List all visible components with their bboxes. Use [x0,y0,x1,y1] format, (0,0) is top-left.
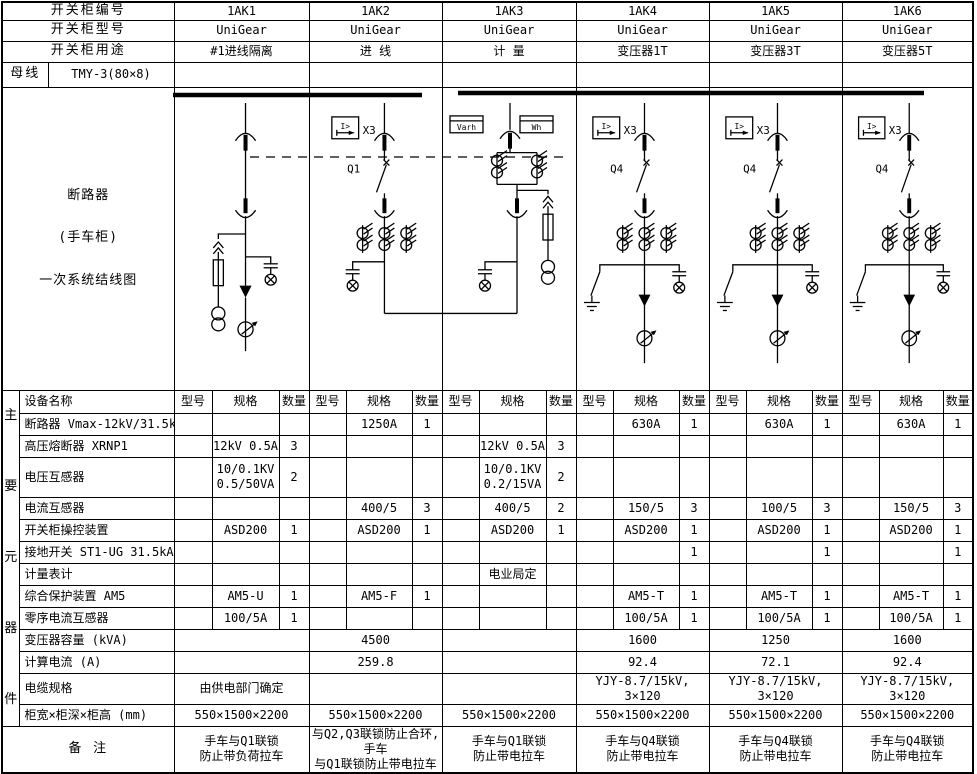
oneline-diagram-1ak1 [175,103,309,375]
cell-r2-cab6-model [842,457,879,497]
cell-r7-cab3-spec [479,585,546,607]
equipment-row-1: 高压熔断器 XRNP112kV 0.5A312kV 0.5A3 [2,435,973,457]
col-header-qty: 数量 [812,390,842,413]
cell-r3-cab1-spec [212,497,279,519]
cell-r1-cab1-spec: 12kV 0.5A [212,435,279,457]
cell-r7-cab5-model [709,585,746,607]
cell-r6-cab6-spec [879,563,943,585]
cell-r11-cab5: YJY-8.7/15kV, 3×120 [709,673,842,704]
cell-r2-cab3-qty: 2 [546,457,576,497]
cell-r0-cab4-qty: 1 [679,413,709,435]
cell-r0-cab5-spec: 630A [746,413,812,435]
cell-r8-cab5-model [709,607,746,629]
cell-r8-cab2-model [309,607,346,629]
col-header-qty: 数量 [679,390,709,413]
relay-symbol-text: I> [340,121,350,130]
cell-r9-cab5: 1250 [709,629,842,651]
cell-r8-cab6-qty: 1 [943,607,973,629]
cell-r3-cab3-qty: 2 [546,497,576,519]
cell-r2-cab5-spec [746,457,812,497]
equipment-name-7: 综合保护装置 AM5 [19,585,174,607]
side-char: 件 [4,692,17,708]
cabinet-purpose-3: 计 量 [442,41,576,62]
cell-r3-cab2-qty: 3 [412,497,442,519]
breaker-label-q4: Q4 [875,162,888,175]
cell-r12-cab4: 550×1500×2200 [576,704,709,726]
remark-1ak1: 手车与Q1联锁 防止带负荷拉车 [174,726,309,773]
cell-r9-cab3 [442,629,576,651]
cell-r2-cab3-model [442,457,479,497]
cell-r0-cab2-model [309,413,346,435]
diagram-cell-1ak2: I> X3 Q1 [309,87,442,390]
cell-r8-cab2-qty [412,607,442,629]
side-char: 器 [4,621,17,637]
equipment-name-6: 计量表计 [19,563,174,585]
cell-r5-cab5-model [709,541,746,563]
cabinet-purpose-4: 变压器1T [576,41,709,62]
row-remarks: 备 注 手车与Q1联锁 防止带负荷拉车 与Q2,Q3联锁防止合环,手车 与Q1联… [2,726,973,773]
cell-r6-cab3-spec: 电业局定 [479,563,546,585]
cell-r2-cab1-model [174,457,212,497]
row-diagrams: 断路器 (手车柜) 一次系统结线图 [2,87,973,390]
cabinet-number-4: 1AK4 [576,2,709,20]
cell-r2-cab2-qty [412,457,442,497]
cell-r7-cab2-model [309,585,346,607]
remarks-label: 备 注 [2,726,174,773]
cell-r0-cab1-model [174,413,212,435]
col-header-model: 型号 [842,390,879,413]
cell-r5-cab3-spec [479,541,546,563]
diagram-cell-1ak4: I> X3 Q4 [576,87,709,390]
cell-r6-cab2-qty [412,563,442,585]
cell-r0-cab1-qty [279,413,309,435]
cabinet-number-5: 1AK5 [709,2,842,20]
cell-r6-cab1-qty [279,563,309,585]
equipment-row-12: 柜宽×柜深×柜高 (mm)550×1500×2200550×1500×22005… [2,704,973,726]
cabinet-model-label: 开关柜型号 [2,20,174,41]
cell-r5-cab2-model [309,541,346,563]
cell-r5-cab1-spec [212,541,279,563]
col-header-spec: 规格 [479,390,546,413]
cell-r3-cab1-qty [279,497,309,519]
cell-r0-cab4-model [576,413,613,435]
cabinet-number-1: 1AK1 [174,2,309,20]
cell-r4-cab3-model [442,519,479,541]
cabinet-purpose-5: 变压器3T [709,41,842,62]
busbar-cell-1ak6 [842,62,973,87]
cell-r9-cab2: 4500 [309,629,442,651]
equipment-row-2: 电压互感器10/0.1KV 0.5/50VA210/0.1KV 0.2/15VA… [2,457,973,497]
col-header-qty: 数量 [279,390,309,413]
cell-r6-cab4-model [576,563,613,585]
cell-r7-cab2-spec: AM5-F [346,585,412,607]
busbar-label: 母线 [2,62,48,87]
cabinet-number-6: 1AK6 [842,2,973,20]
cell-r7-cab2-qty: 1 [412,585,442,607]
diagram-cell-1ak5: I> X3 Q4 [709,87,842,390]
cell-r5-cab6-qty: 1 [943,541,973,563]
equipment-name-5: 接地开关 ST1-UG 31.5kA [19,541,174,563]
cell-r1-cab3-model [442,435,479,457]
col-header-qty: 数量 [943,390,973,413]
diagram-cell-1ak1 [174,87,309,390]
cell-r5-cab2-spec [346,541,412,563]
cell-r3-cab4-model [576,497,613,519]
col-header-model: 型号 [442,390,479,413]
cabinet-model-5: UniGear [709,20,842,41]
cell-r5-cab3-model [442,541,479,563]
cell-r1-cab4-model [576,435,613,457]
cell-r2-cab3-spec: 10/0.1KV 0.2/15VA [479,457,546,497]
cell-r8-cab6-spec: 100/5A [879,607,943,629]
cell-r7-cab1-qty: 1 [279,585,309,607]
cell-r7-cab6-spec: AM5-T [879,585,943,607]
cell-r8-cab4-spec: 100/5A [613,607,679,629]
cell-r6-cab4-qty [679,563,709,585]
cell-r7-cab1-model [174,585,212,607]
cell-r11-cab4: YJY-8.7/15kV, 3×120 [576,673,709,704]
cell-r5-cab1-qty [279,541,309,563]
col-header-spec: 规格 [212,390,279,413]
equipment-name-11: 电缆规格 [19,673,174,704]
cell-r3-cab5-spec: 100/5 [746,497,812,519]
cell-r5-cab1-model [174,541,212,563]
cell-r6-cab6-qty [943,563,973,585]
cell-r12-cab5: 550×1500×2200 [709,704,842,726]
cell-r4-cab6-qty: 1 [943,519,973,541]
oneline-diagram-1ak4: I> X3 Q4 [577,103,709,375]
cell-r6-cab5-spec [746,563,812,585]
cell-r1-cab5-model [709,435,746,457]
cell-r7-cab4-spec: AM5-T [613,585,679,607]
cell-r0-cab6-spec: 630A [879,413,943,435]
cell-r7-cab5-qty: 1 [812,585,842,607]
cell-r8-cab2-spec [346,607,412,629]
cell-r0-cab2-spec: 1250A [346,413,412,435]
cell-r4-cab2-model [309,519,346,541]
cell-r7-cab3-model [442,585,479,607]
remark-1ak4: 手车与Q4联锁 防止带电拉车 [576,726,709,773]
cell-r0-cab3-qty [546,413,576,435]
remark-1ak6: 手车与Q4联锁 防止带电拉车 [842,726,973,773]
cell-r8-cab5-spec: 100/5A [746,607,812,629]
cell-r10-cab1 [174,651,309,673]
cell-r8-cab3-spec [479,607,546,629]
cell-r4-cab1-model [174,519,212,541]
cabinet-purpose-1: #1进线隔离 [174,41,309,62]
cell-r8-cab3-qty [546,607,576,629]
cell-r3-cab6-model [842,497,879,519]
cell-r4-cab1-spec: ASD200 [212,519,279,541]
cell-r7-cab6-qty: 1 [943,585,973,607]
busbar-cell-1ak2 [309,62,442,87]
cell-r2-cab2-spec [346,457,412,497]
cell-r4-cab1-qty: 1 [279,519,309,541]
cell-r11-cab1: 由供电部门确定 [174,673,309,704]
cell-r5-cab4-model [576,541,613,563]
equipment-row-7: 综合保护装置 AM5AM5-U1AM5-F1AM5-T1AM5-T1AM5-T1 [2,585,973,607]
col-header-model: 型号 [576,390,613,413]
relay-symbol-text: I> [867,121,877,130]
remark-1ak5: 手车与Q4联锁 防止带电拉车 [709,726,842,773]
wh-meter-label: Wh [531,122,541,131]
col-header-spec: 规格 [613,390,679,413]
cell-r8-cab3-model [442,607,479,629]
cell-r1-cab1-model [174,435,212,457]
equipment-name-12: 柜宽×柜深×柜高 (mm) [19,704,174,726]
diagram-cell-1ak6: I> X3 Q4 [842,87,973,390]
cell-r4-cab2-spec: ASD200 [346,519,412,541]
cell-r3-cab1-model [174,497,212,519]
oneline-diagram-1ak2: I> X3 Q1 [310,103,442,375]
equipment-row-4: 开关柜操控装置ASD2001ASD2001ASD2001ASD2001ASD20… [2,519,973,541]
col-header-spec: 规格 [746,390,812,413]
cell-r8-cab6-model [842,607,879,629]
col-header-name: 设备名称 [19,390,174,413]
col-header-qty: 数量 [546,390,576,413]
cell-r6-cab5-model [709,563,746,585]
cabinet-purpose-2: 进 线 [309,41,442,62]
cell-r2-cab5-model [709,457,746,497]
cell-r2-cab5-qty [812,457,842,497]
cell-r5-cab4-spec [613,541,679,563]
cell-r3-cab4-qty: 3 [679,497,709,519]
cell-r3-cab2-spec: 400/5 [346,497,412,519]
drawing-sheet: 开关柜编号 1AK1 1AK2 1AK3 1AK4 1AK5 1AK6 开关柜型… [0,1,977,738]
cell-r3-cab6-qty: 3 [943,497,973,519]
equipment-row-0: 断路器 Vmax-12kV/31.5kA1250A1630A1630A1630A… [2,413,973,435]
cell-r2-cab1-spec: 10/0.1KV 0.5/50VA [212,457,279,497]
cell-r0-cab1-spec [212,413,279,435]
cell-r9-cab6: 1600 [842,629,973,651]
cell-r0-cab3-spec [479,413,546,435]
col-header-model: 型号 [309,390,346,413]
cell-r6-cab5-qty [812,563,842,585]
remark-1ak3: 手车与Q1联锁 防止带电拉车 [442,726,576,773]
cell-r10-cab4: 92.4 [576,651,709,673]
cell-r8-cab5-qty: 1 [812,607,842,629]
cell-r7-cab4-qty: 1 [679,585,709,607]
row-cabinet-model: 开关柜型号 UniGear UniGear UniGear UniGear Un… [2,20,973,41]
cell-r1-cab4-spec [613,435,679,457]
cell-r6-cab1-spec [212,563,279,585]
equipment-name-3: 电流互感器 [19,497,174,519]
cell-r4-cab4-model [576,519,613,541]
cell-r2-cab2-model [309,457,346,497]
cell-r3-cab6-spec: 150/5 [879,497,943,519]
equipment-row-3: 电流互感器400/53400/52150/53100/53150/53 [2,497,973,519]
cell-r4-cab5-model [709,519,746,541]
cell-r7-cab3-qty [546,585,576,607]
cell-r2-cab6-qty [943,457,973,497]
cell-r5-cab2-qty [412,541,442,563]
remark-1ak2: 与Q2,Q3联锁防止合环,手车 与Q1联锁防止带电拉车 [309,726,442,773]
side-char: 主 [4,408,17,424]
cell-r11-cab6: YJY-8.7/15kV, 3×120 [842,673,973,704]
cell-r1-cab3-spec: 12kV 0.5A [479,435,546,457]
cell-r12-cab3: 550×1500×2200 [442,704,576,726]
equipment-name-8: 零序电流互感器 [19,607,174,629]
row-equipment-header: 主 要 元 器 件 设备名称 型号 规格 数量 型号 规格 数量 型号 规格 数… [2,390,973,413]
cell-r0-cab5-qty: 1 [812,413,842,435]
cabinet-model-6: UniGear [842,20,973,41]
cell-r3-cab5-model [709,497,746,519]
equipment-row-10: 计算电流 (A)259.892.472.192.4 [2,651,973,673]
cabinet-number-2: 1AK2 [309,2,442,20]
cabinet-purpose-label: 开关柜用途 [2,41,174,62]
cell-r2-cab4-model [576,457,613,497]
col-header-model: 型号 [174,390,212,413]
cabinet-number-3: 1AK3 [442,2,576,20]
cabinet-number-label: 开关柜编号 [2,2,174,20]
cell-r12-cab1: 550×1500×2200 [174,704,309,726]
cell-r8-cab1-spec: 100/5A [212,607,279,629]
equipment-name-2: 电压互感器 [19,457,174,497]
equipment-row-11: 电缆规格由供电部门确定YJY-8.7/15kV, 3×120YJY-8.7/15… [2,673,973,704]
cell-r4-cab3-qty: 1 [546,519,576,541]
equipment-row-6: 计量表计电业局定 [2,563,973,585]
cell-r5-cab5-spec [746,541,812,563]
cell-r11-cab3 [442,673,576,704]
cell-r9-cab4: 1600 [576,629,709,651]
side-label-main-components: 主 要 元 器 件 [2,390,19,726]
cell-r6-cab3-model [442,563,479,585]
cell-r4-cab3-spec: ASD200 [479,519,546,541]
cell-r10-cab6: 92.4 [842,651,973,673]
breaker-label-q1: Q1 [347,162,360,175]
cell-r6-cab2-spec [346,563,412,585]
row-cabinet-number: 开关柜编号 1AK1 1AK2 1AK3 1AK4 1AK5 1AK6 [2,2,973,20]
equipment-row-5: 接地开关 ST1-UG 31.5kA111 [2,541,973,563]
cell-r1-cab5-qty [812,435,842,457]
busbar-cell-1ak5 [709,62,842,87]
cell-r1-cab2-spec [346,435,412,457]
cell-r6-cab6-model [842,563,879,585]
cell-r7-cab1-spec: AM5-U [212,585,279,607]
relay-label-1ak5: X3 [756,123,769,136]
side-char: 元 [4,550,17,566]
cabinet-model-2: UniGear [309,20,442,41]
cell-r2-cab1-qty: 2 [279,457,309,497]
cell-r5-cab5-qty: 1 [812,541,842,563]
equipment-name-9: 变压器容量 (kVA) [19,629,174,651]
cell-r1-cab2-model [309,435,346,457]
cell-r1-cab3-qty: 3 [546,435,576,457]
cell-r4-cab4-qty: 1 [679,519,709,541]
cell-r5-cab6-model [842,541,879,563]
cell-r6-cab2-model [309,563,346,585]
equipment-row-9: 变压器容量 (kVA)4500160012501600 [2,629,973,651]
busbar-cell-1ak4 [576,62,709,87]
cell-r7-cab4-model [576,585,613,607]
cabinet-model-1: UniGear [174,20,309,41]
relay-symbol-text: I> [601,121,611,130]
col-header-qty: 数量 [412,390,442,413]
diagram-title-line1: 断路器 [67,188,109,204]
cell-r1-cab6-qty [943,435,973,457]
cell-r0-cab6-qty: 1 [943,413,973,435]
cell-r10-cab5: 72.1 [709,651,842,673]
cell-r3-cab4-spec: 150/5 [613,497,679,519]
cell-r4-cab2-qty: 1 [412,519,442,541]
cell-r0-cab5-model [709,413,746,435]
cell-r0-cab6-model [842,413,879,435]
equipment-name-4: 开关柜操控装置 [19,519,174,541]
cell-r11-cab2 [309,673,442,704]
cell-r7-cab5-spec: AM5-T [746,585,812,607]
busbar-cell-1ak1 [174,62,309,87]
relay-symbol-text: I> [734,121,744,130]
side-char: 要 [4,479,17,495]
relay-label-1ak4: X3 [623,123,636,136]
cell-r5-cab4-qty: 1 [679,541,709,563]
equipment-name-1: 高压熔断器 XRNP1 [19,435,174,457]
cell-r8-cab1-model [174,607,212,629]
diagram-title-line2: (手车柜) [58,230,118,246]
cell-r1-cab5-spec [746,435,812,457]
cell-r4-cab6-spec: ASD200 [879,519,943,541]
switchgear-table: 开关柜编号 1AK1 1AK2 1AK3 1AK4 1AK5 1AK6 开关柜型… [1,1,974,774]
cell-r0-cab2-qty: 1 [412,413,442,435]
equipment-name-0: 断路器 Vmax-12kV/31.5kA [19,413,174,435]
cell-r6-cab1-model [174,563,212,585]
cell-r4-cab6-model [842,519,879,541]
cell-r4-cab4-spec: ASD200 [613,519,679,541]
cabinet-purpose-6: 变压器5T [842,41,973,62]
busbar-cell-1ak3 [442,62,576,87]
cell-r5-cab3-qty [546,541,576,563]
cell-r8-cab1-qty: 1 [279,607,309,629]
cell-r1-cab2-qty [412,435,442,457]
cabinet-model-3: UniGear [442,20,576,41]
col-header-spec: 规格 [346,390,412,413]
cell-r0-cab3-model [442,413,479,435]
cell-r2-cab4-spec [613,457,679,497]
cell-r8-cab4-model [576,607,613,629]
oneline-diagram-1ak5: I> X3 Q4 [710,103,842,375]
diagram-title-line3: 一次系统结线图 [39,273,137,289]
equipment-name-10: 计算电流 (A) [19,651,174,673]
varh-meter-label: Varh [456,122,475,131]
cell-r5-cab6-spec [879,541,943,563]
cell-r0-cab4-spec: 630A [613,413,679,435]
cell-r12-cab6: 550×1500×2200 [842,704,973,726]
col-header-model: 型号 [709,390,746,413]
cell-r1-cab6-spec [879,435,943,457]
cell-r10-cab2: 259.8 [309,651,442,673]
diagram-cell-1ak3: Varh Wh [442,87,576,390]
col-header-spec: 规格 [879,390,943,413]
diagram-title-cell: 断路器 (手车柜) 一次系统结线图 [2,87,174,390]
cell-r8-cab4-qty: 1 [679,607,709,629]
cell-r1-cab6-model [842,435,879,457]
equipment-row-8: 零序电流互感器100/5A1100/5A1100/5A1100/5A1 [2,607,973,629]
cell-r3-cab3-spec: 400/5 [479,497,546,519]
cell-r4-cab5-spec: ASD200 [746,519,812,541]
cabinet-model-4: UniGear [576,20,709,41]
relay-label-1ak2: X3 [362,123,375,136]
cell-r10-cab3 [442,651,576,673]
cell-r6-cab4-spec [613,563,679,585]
oneline-diagram-1ak3: Varh Wh [443,103,576,375]
relay-label-1ak6: X3 [888,123,901,136]
cell-r9-cab1 [174,629,309,651]
breaker-label-q4: Q4 [610,162,624,175]
cell-r3-cab3-model [442,497,479,519]
cell-r1-cab1-qty: 3 [279,435,309,457]
cell-r4-cab5-qty: 1 [812,519,842,541]
busbar-spec: TMY-3(80×8) [48,62,174,87]
